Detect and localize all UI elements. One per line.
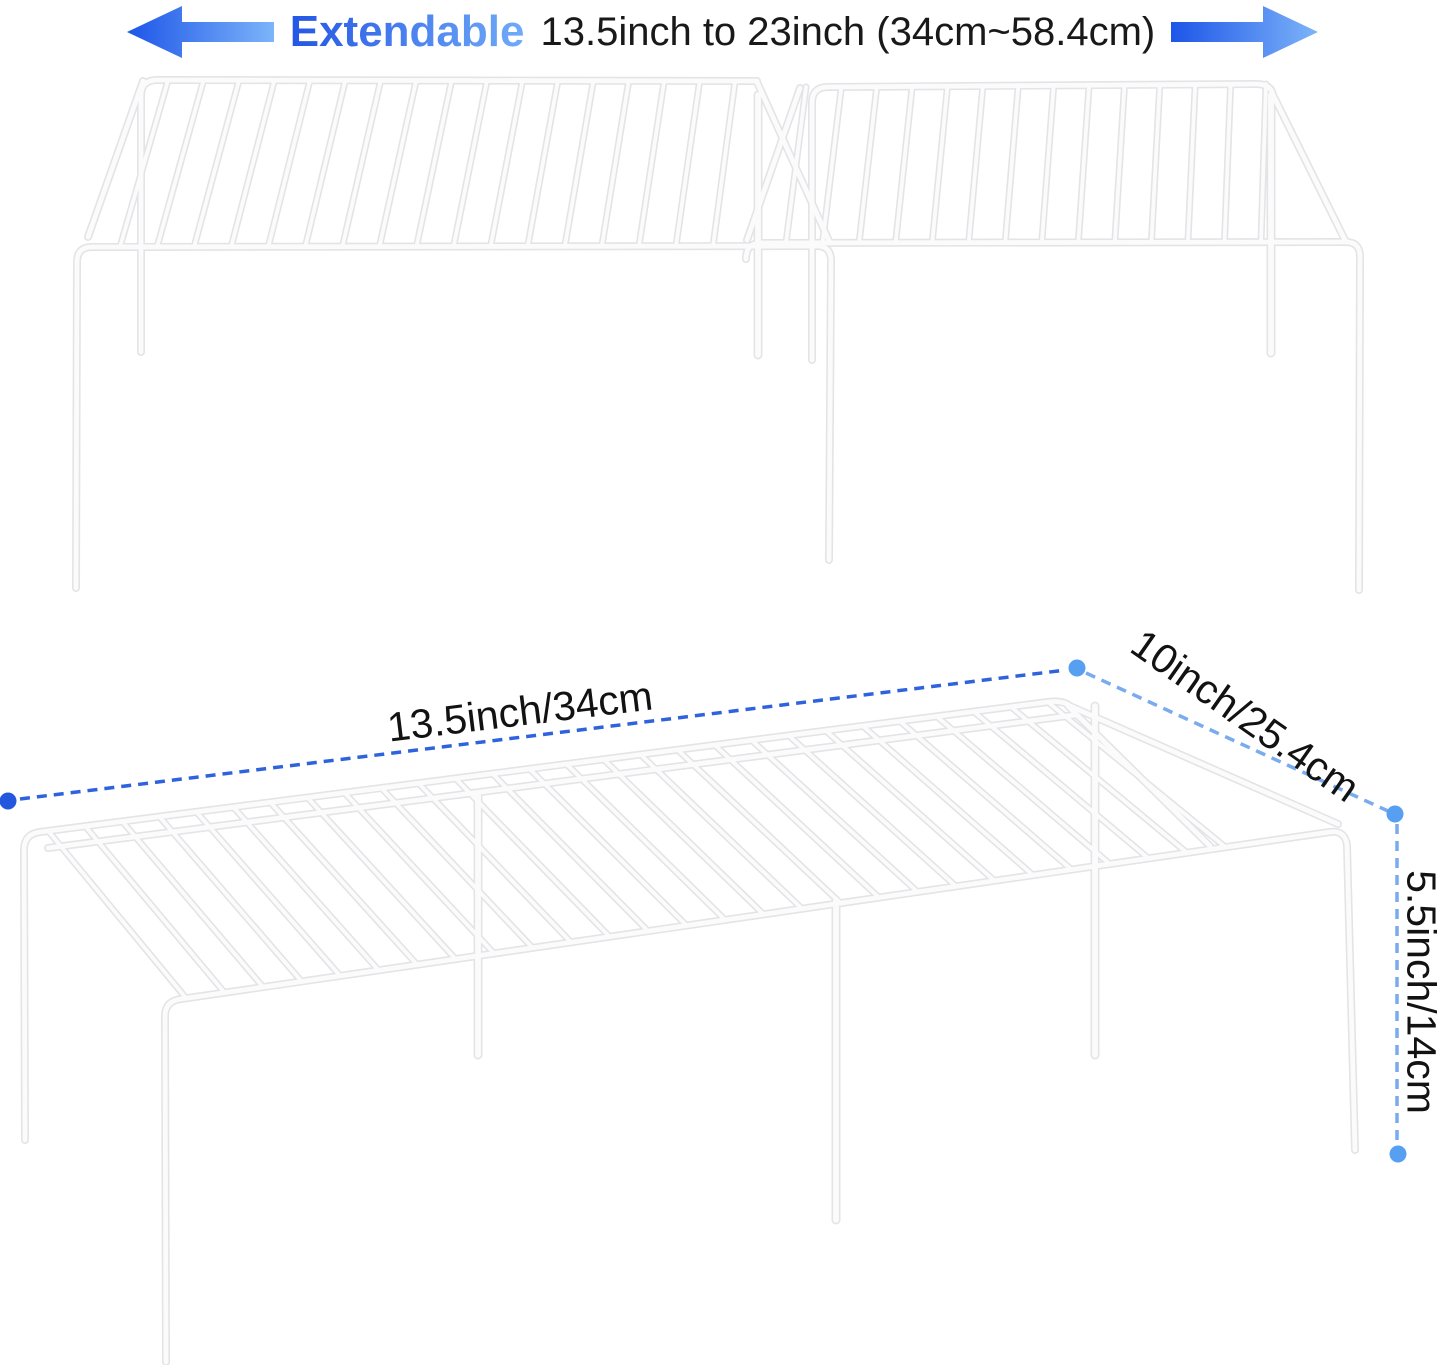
retracted-rack-drawing <box>24 702 1355 1363</box>
product-image: Extendable 13.5inch to 23inch (34cm~58.4… <box>0 0 1445 1365</box>
extended-rack-drawing <box>76 80 1360 590</box>
height-dimension-label: 5.5inch/14cm <box>1398 870 1445 1114</box>
dimension-lines <box>0 660 1407 1163</box>
